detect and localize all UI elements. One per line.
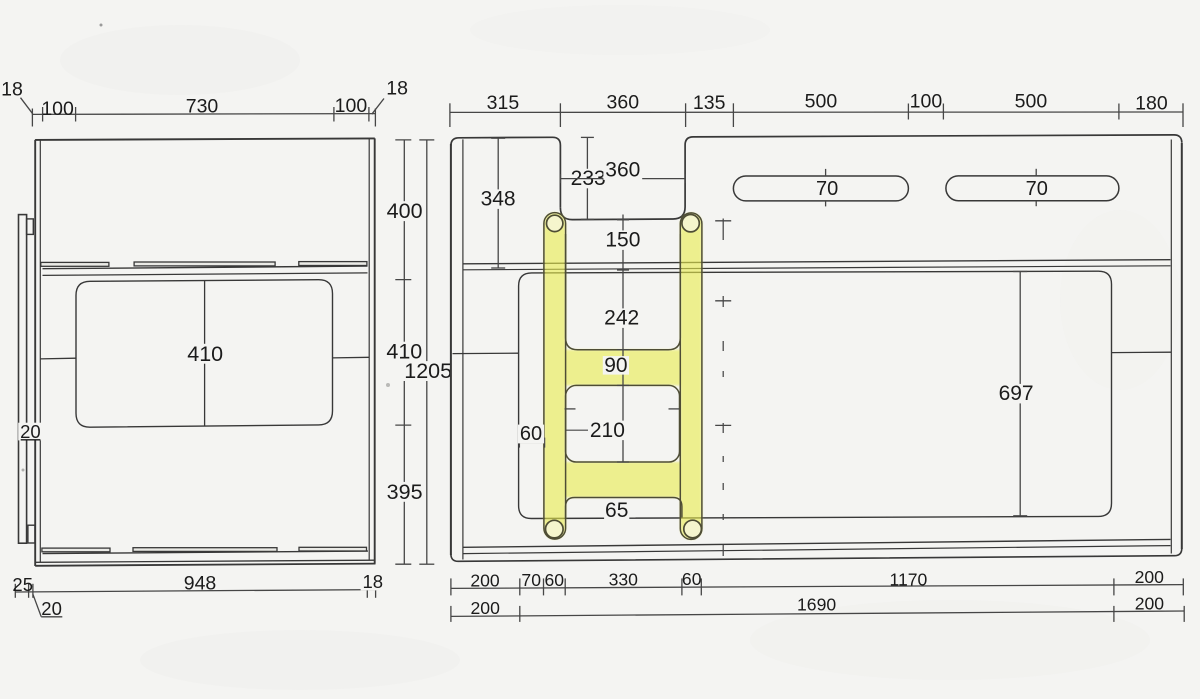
svg-text:242: 242 xyxy=(604,307,639,330)
svg-text:70: 70 xyxy=(816,178,838,200)
svg-text:65: 65 xyxy=(605,499,628,522)
svg-text:360: 360 xyxy=(607,92,640,114)
svg-text:18: 18 xyxy=(386,78,408,100)
svg-text:100: 100 xyxy=(41,98,74,120)
svg-text:180: 180 xyxy=(1135,92,1168,114)
svg-text:150: 150 xyxy=(605,229,640,252)
svg-text:60: 60 xyxy=(545,570,565,590)
svg-text:200: 200 xyxy=(1135,594,1165,614)
svg-text:360: 360 xyxy=(605,159,640,182)
svg-text:1205: 1205 xyxy=(404,359,452,383)
svg-text:500: 500 xyxy=(805,91,838,113)
svg-text:25: 25 xyxy=(12,574,33,595)
svg-text:1690: 1690 xyxy=(797,595,836,615)
svg-text:18: 18 xyxy=(363,571,384,592)
svg-text:60: 60 xyxy=(682,569,702,589)
svg-text:400: 400 xyxy=(387,199,423,223)
svg-text:210: 210 xyxy=(590,419,625,442)
svg-text:70: 70 xyxy=(1026,178,1048,200)
svg-text:135: 135 xyxy=(693,92,726,114)
svg-text:697: 697 xyxy=(999,382,1034,405)
svg-text:18: 18 xyxy=(1,79,23,101)
svg-text:1170: 1170 xyxy=(889,570,927,590)
svg-text:100: 100 xyxy=(910,91,943,113)
svg-text:70: 70 xyxy=(521,570,541,590)
svg-text:948: 948 xyxy=(184,573,217,595)
svg-text:500: 500 xyxy=(1015,91,1048,113)
svg-text:100: 100 xyxy=(335,95,368,117)
svg-text:20: 20 xyxy=(20,421,41,442)
svg-text:730: 730 xyxy=(186,95,219,117)
svg-text:200: 200 xyxy=(470,571,500,591)
svg-text:395: 395 xyxy=(387,480,423,504)
svg-text:410: 410 xyxy=(187,342,223,366)
svg-text:315: 315 xyxy=(487,92,520,114)
svg-text:60: 60 xyxy=(520,423,542,445)
svg-text:90: 90 xyxy=(604,354,627,377)
svg-text:200: 200 xyxy=(1135,567,1165,587)
svg-text:330: 330 xyxy=(609,570,639,590)
svg-text:20: 20 xyxy=(41,598,62,619)
svg-text:348: 348 xyxy=(481,188,516,211)
svg-text:200: 200 xyxy=(471,598,501,618)
